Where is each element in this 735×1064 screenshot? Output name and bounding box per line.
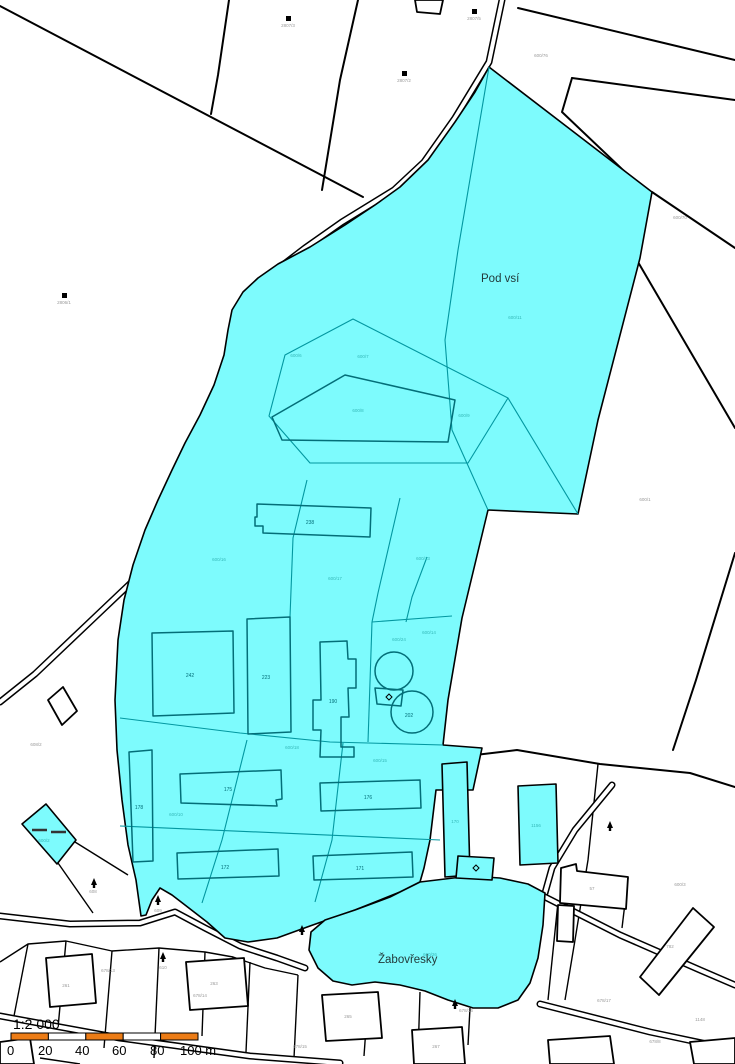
tree-icon xyxy=(160,952,166,962)
boundary-line xyxy=(246,962,250,1052)
house-footprint xyxy=(0,1038,34,1064)
parcel-label: 678/14 xyxy=(193,993,207,998)
map-page: Pod vsí Žabovřesky 2807/3 2807/2 2807/5 … xyxy=(0,0,735,1064)
building-label: 175 xyxy=(224,787,233,793)
boundary-line xyxy=(450,750,735,787)
tree-icon xyxy=(155,895,161,905)
parcel-label: 600/8 xyxy=(352,408,364,413)
highlight-area-main xyxy=(115,67,652,942)
parcel-label: 600/18 xyxy=(285,745,299,750)
parcel-label: 2807/5 xyxy=(467,16,481,21)
parcel-label: 600/9 xyxy=(458,413,470,418)
boundary-line xyxy=(0,6,363,197)
building-label: 176 xyxy=(364,795,373,801)
parcel-label: 2806/1 xyxy=(57,300,71,305)
boundary-line xyxy=(211,0,229,114)
cadastral-map: Pod vsí Žabovřesky 2807/3 2807/2 2807/5 … xyxy=(0,0,735,1064)
parcel-label: 600/2 xyxy=(38,838,50,843)
boundary-line xyxy=(673,553,735,750)
building-label: 171 xyxy=(356,866,365,872)
parcel-label: 267 xyxy=(432,1044,440,1049)
boundary-line xyxy=(572,78,735,100)
parcel-label: 608/2 xyxy=(30,742,42,747)
building-footprint xyxy=(415,0,443,14)
building-footprint xyxy=(557,905,574,942)
parcel-label: 263 xyxy=(210,981,218,986)
highlight-parcel-parallelogram xyxy=(22,804,76,864)
parcel-label: 57 xyxy=(589,886,595,891)
parcel-label: 600/7 xyxy=(357,354,369,359)
building-footprint xyxy=(48,687,77,725)
landmark-square-icon xyxy=(472,9,477,14)
parcel-label: 2807/2 xyxy=(397,78,411,83)
parcel-label: 782 xyxy=(666,944,674,949)
boundary-line xyxy=(75,842,128,875)
scalebar-segment xyxy=(48,1033,85,1040)
tree-icon xyxy=(91,878,97,888)
parcel-label: 600/11 xyxy=(508,315,522,320)
boundary-line xyxy=(58,863,93,913)
parcel-label: 600/3 xyxy=(674,882,686,887)
parcel-label: 610 xyxy=(159,965,167,970)
boundary-line xyxy=(548,902,558,1000)
boundary-line xyxy=(468,1008,470,1045)
parcel-label: 265 xyxy=(344,1014,352,1019)
parcel-label: 170 xyxy=(451,819,459,824)
parcel-label: 678/8 xyxy=(649,1039,661,1044)
boundary-line xyxy=(518,8,735,60)
boundary-line xyxy=(322,0,358,190)
boundary-line xyxy=(40,1058,80,1064)
landmark-square-icon xyxy=(62,293,67,298)
scalebar-tick: 0 xyxy=(7,1043,14,1058)
highlight-areas xyxy=(22,67,652,1008)
house-footprint xyxy=(46,954,96,1007)
parcel-label: 600/14 xyxy=(422,630,436,635)
boundary-line xyxy=(652,192,735,248)
parcel-label: 2807/3 xyxy=(281,23,295,28)
scalebar-tick: 20 xyxy=(38,1043,52,1058)
region-label-pod-vsi: Pod vsí xyxy=(481,273,520,285)
house-footprint xyxy=(690,1038,735,1064)
parcel-label: 1148 xyxy=(695,1017,705,1022)
building-label: 242 xyxy=(186,673,195,679)
parcel-label: 600/16 xyxy=(212,557,226,562)
parcel-label: 600/70 xyxy=(673,215,687,220)
parcel-label: 600/1 xyxy=(639,497,651,502)
house-footprint xyxy=(322,992,382,1041)
scalebar-segment xyxy=(11,1033,48,1040)
scalebar-tick: 40 xyxy=(75,1043,89,1058)
boundary-line xyxy=(0,941,298,975)
scale-ratio-label: 1:2 000 xyxy=(13,1016,60,1032)
parcel-label: 600/26 xyxy=(423,952,437,957)
scalebar-segment xyxy=(161,1033,198,1040)
scalebar-tick: 100 m xyxy=(180,1043,216,1058)
boundary-line xyxy=(14,944,28,1016)
parcel-label: 600/17 xyxy=(328,576,342,581)
scalebar-tick: 60 xyxy=(112,1043,126,1058)
tree-icon xyxy=(607,821,613,831)
scale-bar: 1:2 000 0 20 40 60 80 100 m xyxy=(7,1016,216,1058)
parcel-label: 608 xyxy=(89,889,97,894)
parcel-label: 1156 xyxy=(531,823,541,828)
scalebar-segment xyxy=(86,1033,123,1040)
building-label: 172 xyxy=(221,865,230,871)
building-label: 223 xyxy=(262,675,271,681)
parcel-label: 600/24 xyxy=(392,637,406,642)
building-label: 190 xyxy=(329,699,338,705)
parcel-label: 678/13 xyxy=(101,968,115,973)
parcel-label: 261 xyxy=(62,983,70,988)
highlight-parcel-small xyxy=(456,856,494,880)
parcel-label: 678/15 xyxy=(293,1044,307,1049)
scalebar-segment xyxy=(123,1033,160,1040)
landmark-square-icon xyxy=(402,71,407,76)
building-label: 202 xyxy=(405,713,414,719)
parcel-label: 600/10 xyxy=(169,812,183,817)
parcel-label: 600/76 xyxy=(534,53,548,58)
parcel-label: 600/15 xyxy=(373,758,387,763)
building-label: 178 xyxy=(135,805,144,811)
parcel-label: 600/13 xyxy=(416,556,430,561)
parcel-label: 609 xyxy=(154,908,162,913)
parcel-label: 600/6 xyxy=(290,353,302,358)
parcel-label: 678/16 xyxy=(459,1008,473,1013)
building-label: 238 xyxy=(306,520,315,526)
boundary-line xyxy=(638,262,735,428)
landmark-square-icon xyxy=(286,16,291,21)
scalebar-tick: 80 xyxy=(150,1043,164,1058)
house-footprint xyxy=(548,1036,614,1064)
parcel-label: 678/17 xyxy=(597,998,611,1003)
